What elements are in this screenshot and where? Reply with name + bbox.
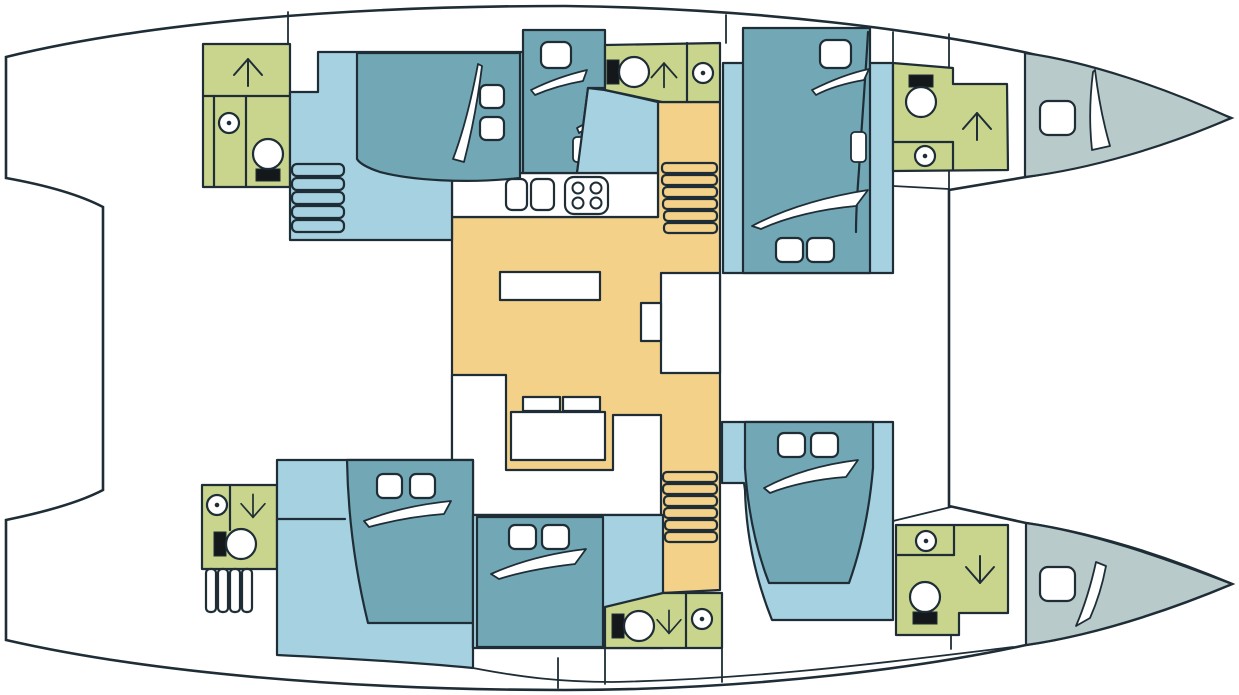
washbasin-icon: [916, 531, 936, 551]
step: [292, 206, 344, 218]
deck-steps: [206, 569, 252, 612]
catamaran-deck-plan: deck layout, top view, bow to the right …: [0, 0, 1239, 695]
pillow: [851, 132, 866, 162]
washbasin-icon: [915, 146, 935, 166]
stair-step: [664, 508, 717, 518]
pillow: [820, 40, 851, 68]
pillow: [509, 525, 536, 549]
pillow: [807, 238, 834, 262]
step: [230, 569, 240, 612]
bathroom-top-aft: [203, 44, 290, 187]
toilet-icon: [214, 529, 256, 559]
toilet-icon: [910, 582, 940, 624]
landing-floor: [577, 88, 658, 173]
pillow: [1040, 101, 1075, 135]
toilet-icon: [253, 139, 283, 181]
step: [292, 220, 344, 232]
stair-step: [664, 223, 717, 233]
toilet-icon: [906, 75, 936, 117]
step: [292, 164, 344, 176]
stair-step: [665, 532, 717, 542]
stair-step: [662, 163, 717, 173]
step: [242, 569, 252, 612]
galley-sink-icon: [531, 179, 554, 210]
double-berth: [477, 517, 603, 647]
galley-sink-icon: [506, 179, 527, 210]
seat-cushion: [563, 397, 600, 411]
companionway-stairs-bottom: [663, 472, 717, 542]
sideboard: [500, 272, 600, 300]
pillow: [377, 474, 402, 498]
island-double-berth: [745, 422, 873, 583]
floorplan-canvas: deck layout, top view, bow to the right …: [0, 0, 1239, 695]
toilet-icon: [607, 57, 649, 87]
stove-icon: [565, 177, 608, 214]
chart-seat: [641, 303, 661, 341]
pillow: [410, 474, 435, 498]
pillow: [811, 433, 838, 457]
pillow: [776, 238, 803, 262]
pillow: [480, 117, 504, 140]
plan-root: deck layout, top view, bow to the right …: [6, 6, 1232, 690]
washbasin-icon: [219, 113, 239, 133]
stair-step: [662, 175, 717, 185]
stair-step: [665, 520, 717, 530]
cabin-steps: [292, 164, 344, 232]
step: [292, 192, 344, 204]
stair-step: [663, 484, 717, 494]
step: [218, 569, 228, 612]
stair-step: [663, 199, 717, 209]
cabin-bottom-aft: [277, 460, 473, 668]
stair-step: [664, 496, 717, 506]
washbasin-icon: [692, 609, 712, 629]
stair-step: [664, 211, 717, 221]
crew-berth-top: [1025, 53, 1231, 177]
companionway-stairs-top: [662, 163, 717, 233]
stair-step: [663, 187, 717, 197]
pillow: [542, 525, 569, 549]
washbasin-icon: [207, 495, 227, 515]
cabin-top-forward: [723, 28, 893, 273]
seat-cushion: [523, 397, 560, 411]
step: [206, 569, 216, 612]
step: [292, 178, 344, 190]
saloon-table: [511, 412, 605, 460]
bathroom-top-mid: [605, 43, 720, 102]
crew-berth-bottom: [1026, 523, 1232, 645]
chart-table: [661, 273, 720, 373]
pillow: [480, 85, 504, 108]
washbasin-icon: [693, 63, 713, 83]
pillow: [1040, 567, 1075, 601]
pillow: [541, 42, 571, 68]
stair-step: [663, 472, 717, 482]
toilet-icon: [612, 611, 654, 641]
pillow: [778, 433, 805, 457]
